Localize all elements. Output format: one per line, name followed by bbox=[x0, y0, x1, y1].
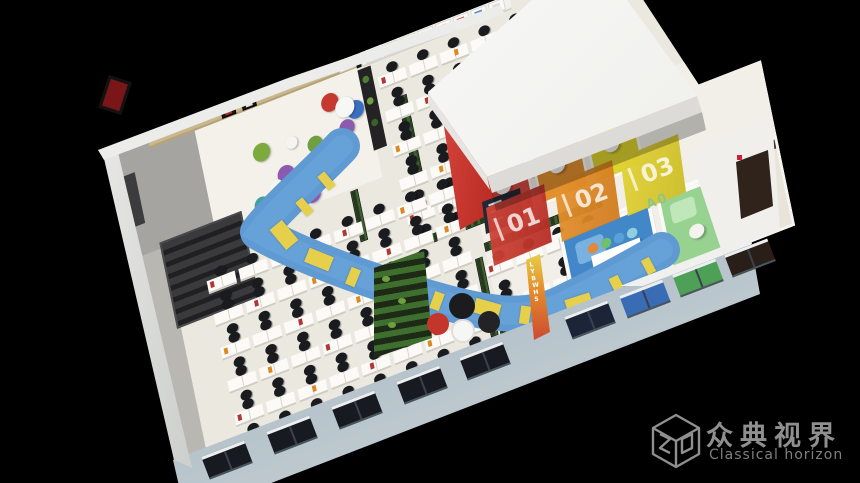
window-mullion bbox=[642, 290, 651, 308]
booth-03-label: 03 bbox=[627, 153, 677, 191]
window-mullion bbox=[587, 311, 596, 329]
window-mullion bbox=[289, 426, 298, 444]
lounge-armchair bbox=[449, 293, 475, 319]
lounge-armchair bbox=[478, 311, 500, 333]
window-mullion bbox=[695, 269, 704, 287]
window-mullion bbox=[354, 401, 363, 419]
office-3d-render: 01 02 03 A0 LYBWHS 众典视界 Classical horizo… bbox=[0, 0, 860, 483]
wall-marker bbox=[737, 155, 742, 160]
lounge-table bbox=[451, 319, 475, 343]
window-mullion bbox=[482, 352, 491, 370]
window-mullion bbox=[224, 451, 233, 469]
booth-02-label: 02 bbox=[561, 179, 611, 217]
window-mullion bbox=[747, 249, 756, 267]
watermark-brand-en: Classical horizon bbox=[709, 447, 843, 463]
lounge-armchair-red bbox=[427, 313, 449, 335]
zd-cube-logo-icon bbox=[650, 412, 702, 470]
window-mullion bbox=[419, 376, 428, 394]
